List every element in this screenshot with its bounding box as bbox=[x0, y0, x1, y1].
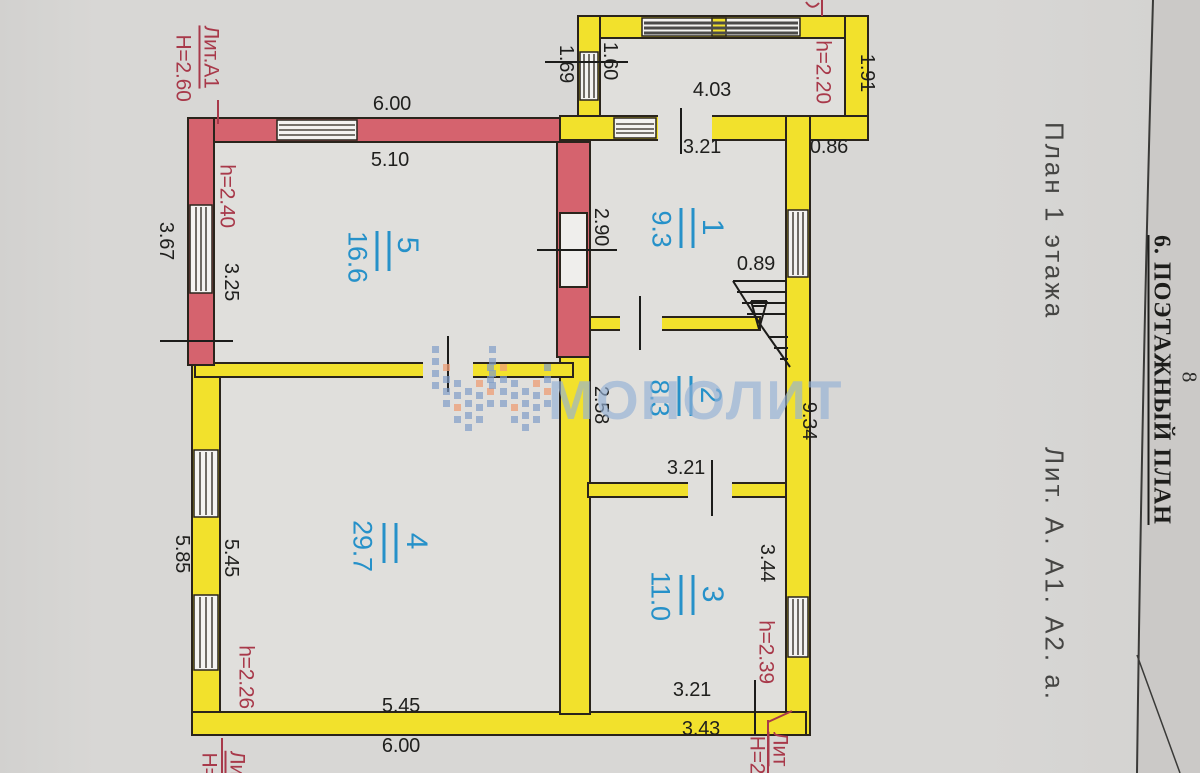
label-rooms-4-number: 5 bbox=[392, 237, 422, 254]
label-labels-d545b: 5.45 bbox=[382, 696, 420, 716]
label-labels-d403: 4.03 bbox=[693, 80, 731, 100]
label-labels-d321b: 3.21 bbox=[673, 680, 711, 700]
room-label-equals-mark bbox=[680, 208, 695, 248]
label-labels-d169: 1.69 bbox=[556, 45, 576, 83]
label-labels-d321m: 3.21 bbox=[667, 458, 705, 478]
label-labels-d086: 0.86 bbox=[810, 137, 848, 157]
label-rooms-3-area: 29.7 bbox=[349, 520, 376, 572]
section-title: 6. ПОЭТАЖНЫЙ ПЛАН bbox=[1148, 235, 1175, 525]
label-labels-d585: 5.85 bbox=[172, 535, 192, 573]
porch-window-glazing bbox=[644, 23, 798, 33]
label-labels-H2_br: Н=2 bbox=[747, 736, 768, 773]
label-labels-d545l: 5.45 bbox=[221, 539, 241, 577]
label-labels-h226: h=2.26 bbox=[236, 645, 257, 709]
label-labels-d191: 1.91 bbox=[857, 54, 877, 92]
label-labels-d290: 2.90 bbox=[591, 208, 611, 246]
label-rooms-2-area: 11.0 bbox=[647, 571, 674, 621]
plan-caption-right: Лит. А. А1. А2. а. bbox=[1039, 447, 1070, 702]
label-rooms-0-area: 9.3 bbox=[648, 211, 675, 248]
room-label-equals-mark bbox=[383, 523, 398, 563]
label-labels-h220: h=2.20 bbox=[813, 40, 834, 104]
label-labels-top_partial: 4.12 bbox=[697, 0, 735, 3]
label-rooms-2-number: 3 bbox=[697, 586, 727, 603]
label-labels-h240: h=2.40 bbox=[217, 164, 238, 228]
label-labels-d367: 3.67 bbox=[156, 222, 176, 260]
label-labels-d510: 5.10 bbox=[371, 150, 409, 170]
label-labels-d600t: 6.00 bbox=[373, 94, 411, 114]
label-labels-H_bl: Н= bbox=[199, 752, 220, 773]
label-rooms-3-number: 4 bbox=[401, 533, 431, 550]
room-label-equals-mark bbox=[680, 575, 695, 615]
label-rooms-0-number: 1 bbox=[697, 219, 727, 236]
plan-caption: План 1 этажа Лит. А. А1. А2. а. bbox=[1039, 122, 1070, 702]
room-label-equals-mark bbox=[376, 231, 391, 271]
label-labels-lit_bl: Лит bbox=[227, 751, 248, 773]
label-labels-d089: 0.89 bbox=[737, 254, 775, 274]
label-labels-litA1: Лит.А1 bbox=[201, 25, 222, 88]
label-labels-d321t: 3.21 bbox=[683, 137, 721, 157]
label-labels-h239: h=2.39 bbox=[756, 620, 777, 684]
plan-caption-left: План 1 этажа bbox=[1039, 122, 1070, 320]
label-labels-d160: 1.60 bbox=[600, 42, 620, 80]
label-labels-d344: 3.44 bbox=[757, 544, 777, 582]
label-labels-lit_br: Лит bbox=[770, 732, 791, 767]
label-labels-d325: 3.25 bbox=[221, 263, 241, 301]
label-labels-d600b: 6.00 bbox=[382, 736, 420, 756]
label-rooms-4-area: 16.6 bbox=[344, 231, 371, 283]
watermark-text: МОНОЛИТ bbox=[548, 368, 843, 432]
scanned-floorplan-page: 4.036.005.103.210.860.893.213.213.435.45… bbox=[0, 0, 1200, 773]
label-labels-d343: 3.43 bbox=[682, 719, 720, 739]
label-labels-H260: Н=2.60 bbox=[173, 34, 194, 101]
page-number: 8 bbox=[1177, 372, 1200, 383]
